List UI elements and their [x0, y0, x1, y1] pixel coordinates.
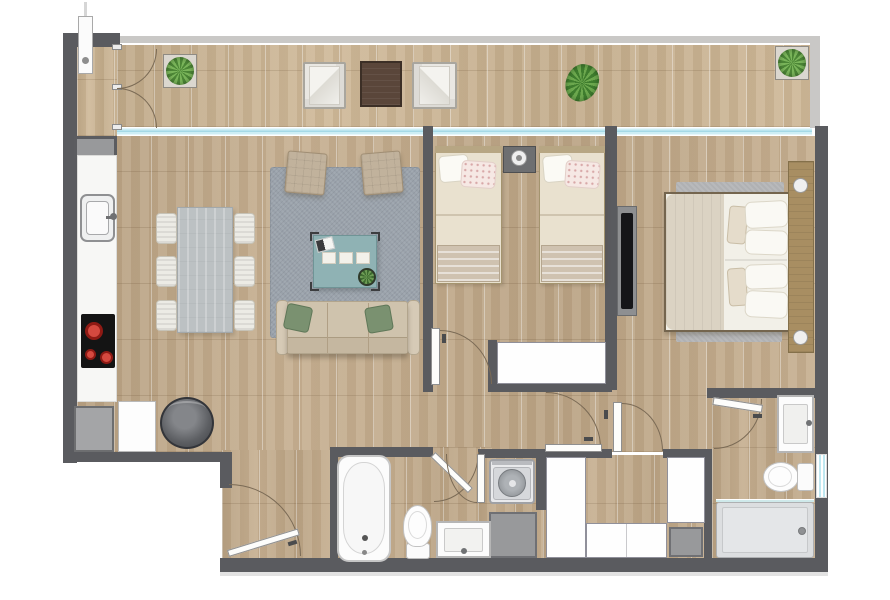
vanity2-faucet	[806, 420, 812, 426]
terrace-side-table	[360, 61, 402, 107]
single-bed-left-headbar	[435, 146, 502, 153]
sofa-pillow-green-left	[283, 303, 314, 334]
wall-bottom-outer	[220, 558, 828, 572]
toilet1-seat	[408, 511, 427, 539]
coffee-table-tray-2	[339, 252, 353, 264]
succulent-plant-left	[166, 57, 194, 85]
master-bathroom-door-handle	[753, 414, 762, 418]
single-bed-right-foldline	[540, 214, 604, 216]
sofa-arm-right	[407, 300, 420, 355]
dining-chair-right-2	[234, 256, 255, 287]
wall-pocket-right	[704, 449, 712, 558]
wall-left-outer	[63, 33, 77, 463]
lounge-chair-left-cushion	[309, 66, 340, 105]
tv-screen	[621, 213, 633, 309]
laundry-door-leaf	[477, 454, 485, 503]
wall-laundry-divider	[536, 449, 546, 510]
coffee-table-corner-tr	[371, 232, 380, 241]
cooktop-burner-small-left	[85, 349, 96, 360]
vanity2-basin	[783, 404, 808, 444]
toilet2-tank	[797, 463, 814, 491]
master-pillow-1	[744, 200, 788, 229]
armchair-right	[360, 150, 404, 195]
dining-chair-right-3	[234, 300, 255, 331]
master-lamp-top	[793, 178, 808, 193]
storage-drum-rim	[168, 401, 206, 417]
terrace-parapet-top	[120, 36, 812, 45]
single-bed-left-foldline	[436, 214, 501, 216]
bedroom2-lamp-center	[516, 155, 522, 161]
walkin-utility-base	[669, 527, 703, 557]
laundry-base-cabinet	[489, 512, 537, 558]
washing-machine-panel	[492, 461, 532, 465]
bathtub-drain	[362, 535, 368, 541]
coffee-table-tray-1	[322, 252, 336, 264]
coffee-table-tray-3	[356, 252, 370, 264]
wall-divider-bed2-master	[605, 126, 617, 390]
vanity1-faucet	[461, 548, 467, 554]
sofa-pillow-green-right	[364, 304, 394, 334]
water-heater-pipe	[84, 2, 87, 16]
bedroom2-wardrobe	[497, 342, 606, 384]
toilet2-seat	[768, 466, 792, 487]
glass-wall-bedroom2	[433, 127, 605, 136]
hallway-door-leaf	[545, 444, 602, 452]
master-bedroom-door-leaf	[613, 402, 622, 452]
sofa-cushion-divider-1	[327, 303, 328, 353]
terrace-parapet-right	[810, 36, 820, 128]
dining-chair-left-2	[156, 256, 177, 287]
bedroom2-door-handle	[442, 334, 446, 343]
succulent-plant-right	[778, 49, 806, 77]
master-bed-blanket	[666, 194, 724, 330]
master-bedroom-door-handle	[604, 410, 608, 419]
glass-wall-master	[617, 127, 812, 136]
shower-tray-inner	[722, 507, 808, 553]
armchair-left	[284, 150, 328, 195]
walkin-closet-right	[667, 457, 705, 523]
floor-plan-canvas	[0, 0, 890, 600]
master-pillow-4	[744, 290, 788, 319]
water-heater-dial	[82, 57, 89, 64]
single-bed-left-blanket	[437, 245, 500, 282]
single-bed-right-blanket	[541, 245, 603, 282]
shower-drain	[798, 527, 806, 535]
terrace-floor	[117, 45, 812, 127]
coffee-table-corner-bl	[310, 282, 319, 291]
dining-chair-right-1	[234, 213, 255, 244]
single-bed-right-pillow-patterned	[564, 160, 601, 189]
single-bed-left-pillow-patterned	[460, 160, 497, 189]
dining-chair-left-3	[156, 300, 177, 331]
master-bed-duvet-crease	[725, 259, 787, 261]
wall-right-outer	[815, 126, 828, 572]
single-bed-right-headbar	[539, 146, 605, 153]
glass-wall-living	[117, 127, 423, 136]
master-pillow-2	[745, 229, 789, 255]
coffee-table-plant	[358, 268, 376, 286]
lounge-chair-right-cushion	[419, 66, 450, 105]
dining-table	[177, 207, 233, 333]
sofa-backrest	[288, 337, 407, 353]
wall-bottom-shadow	[220, 572, 828, 576]
hallway-door-handle	[584, 437, 593, 441]
washing-machine-agitator	[509, 480, 516, 487]
master-lamp-bottom	[793, 330, 808, 345]
refrigerator	[74, 406, 114, 452]
water-heater	[78, 16, 93, 74]
master-bath-window	[816, 454, 827, 498]
bathtub-faucet	[362, 550, 367, 555]
walkin-closet-left	[546, 457, 586, 558]
wall-bed2-closet-bottom	[488, 383, 612, 392]
master-pillow-3	[745, 263, 789, 289]
wall-under-kitchen	[63, 452, 230, 462]
entry-cabinet	[118, 401, 156, 452]
wall-entry-stub	[220, 452, 232, 488]
kitchen-faucet-knob	[110, 213, 117, 220]
cooktop-burner-small-right	[100, 351, 113, 364]
walkin-closet-bottom-divider	[626, 524, 627, 557]
bedroom2-door-leaf	[431, 328, 440, 385]
dining-chair-left-1	[156, 213, 177, 244]
cooktop-burner-large	[85, 322, 103, 340]
